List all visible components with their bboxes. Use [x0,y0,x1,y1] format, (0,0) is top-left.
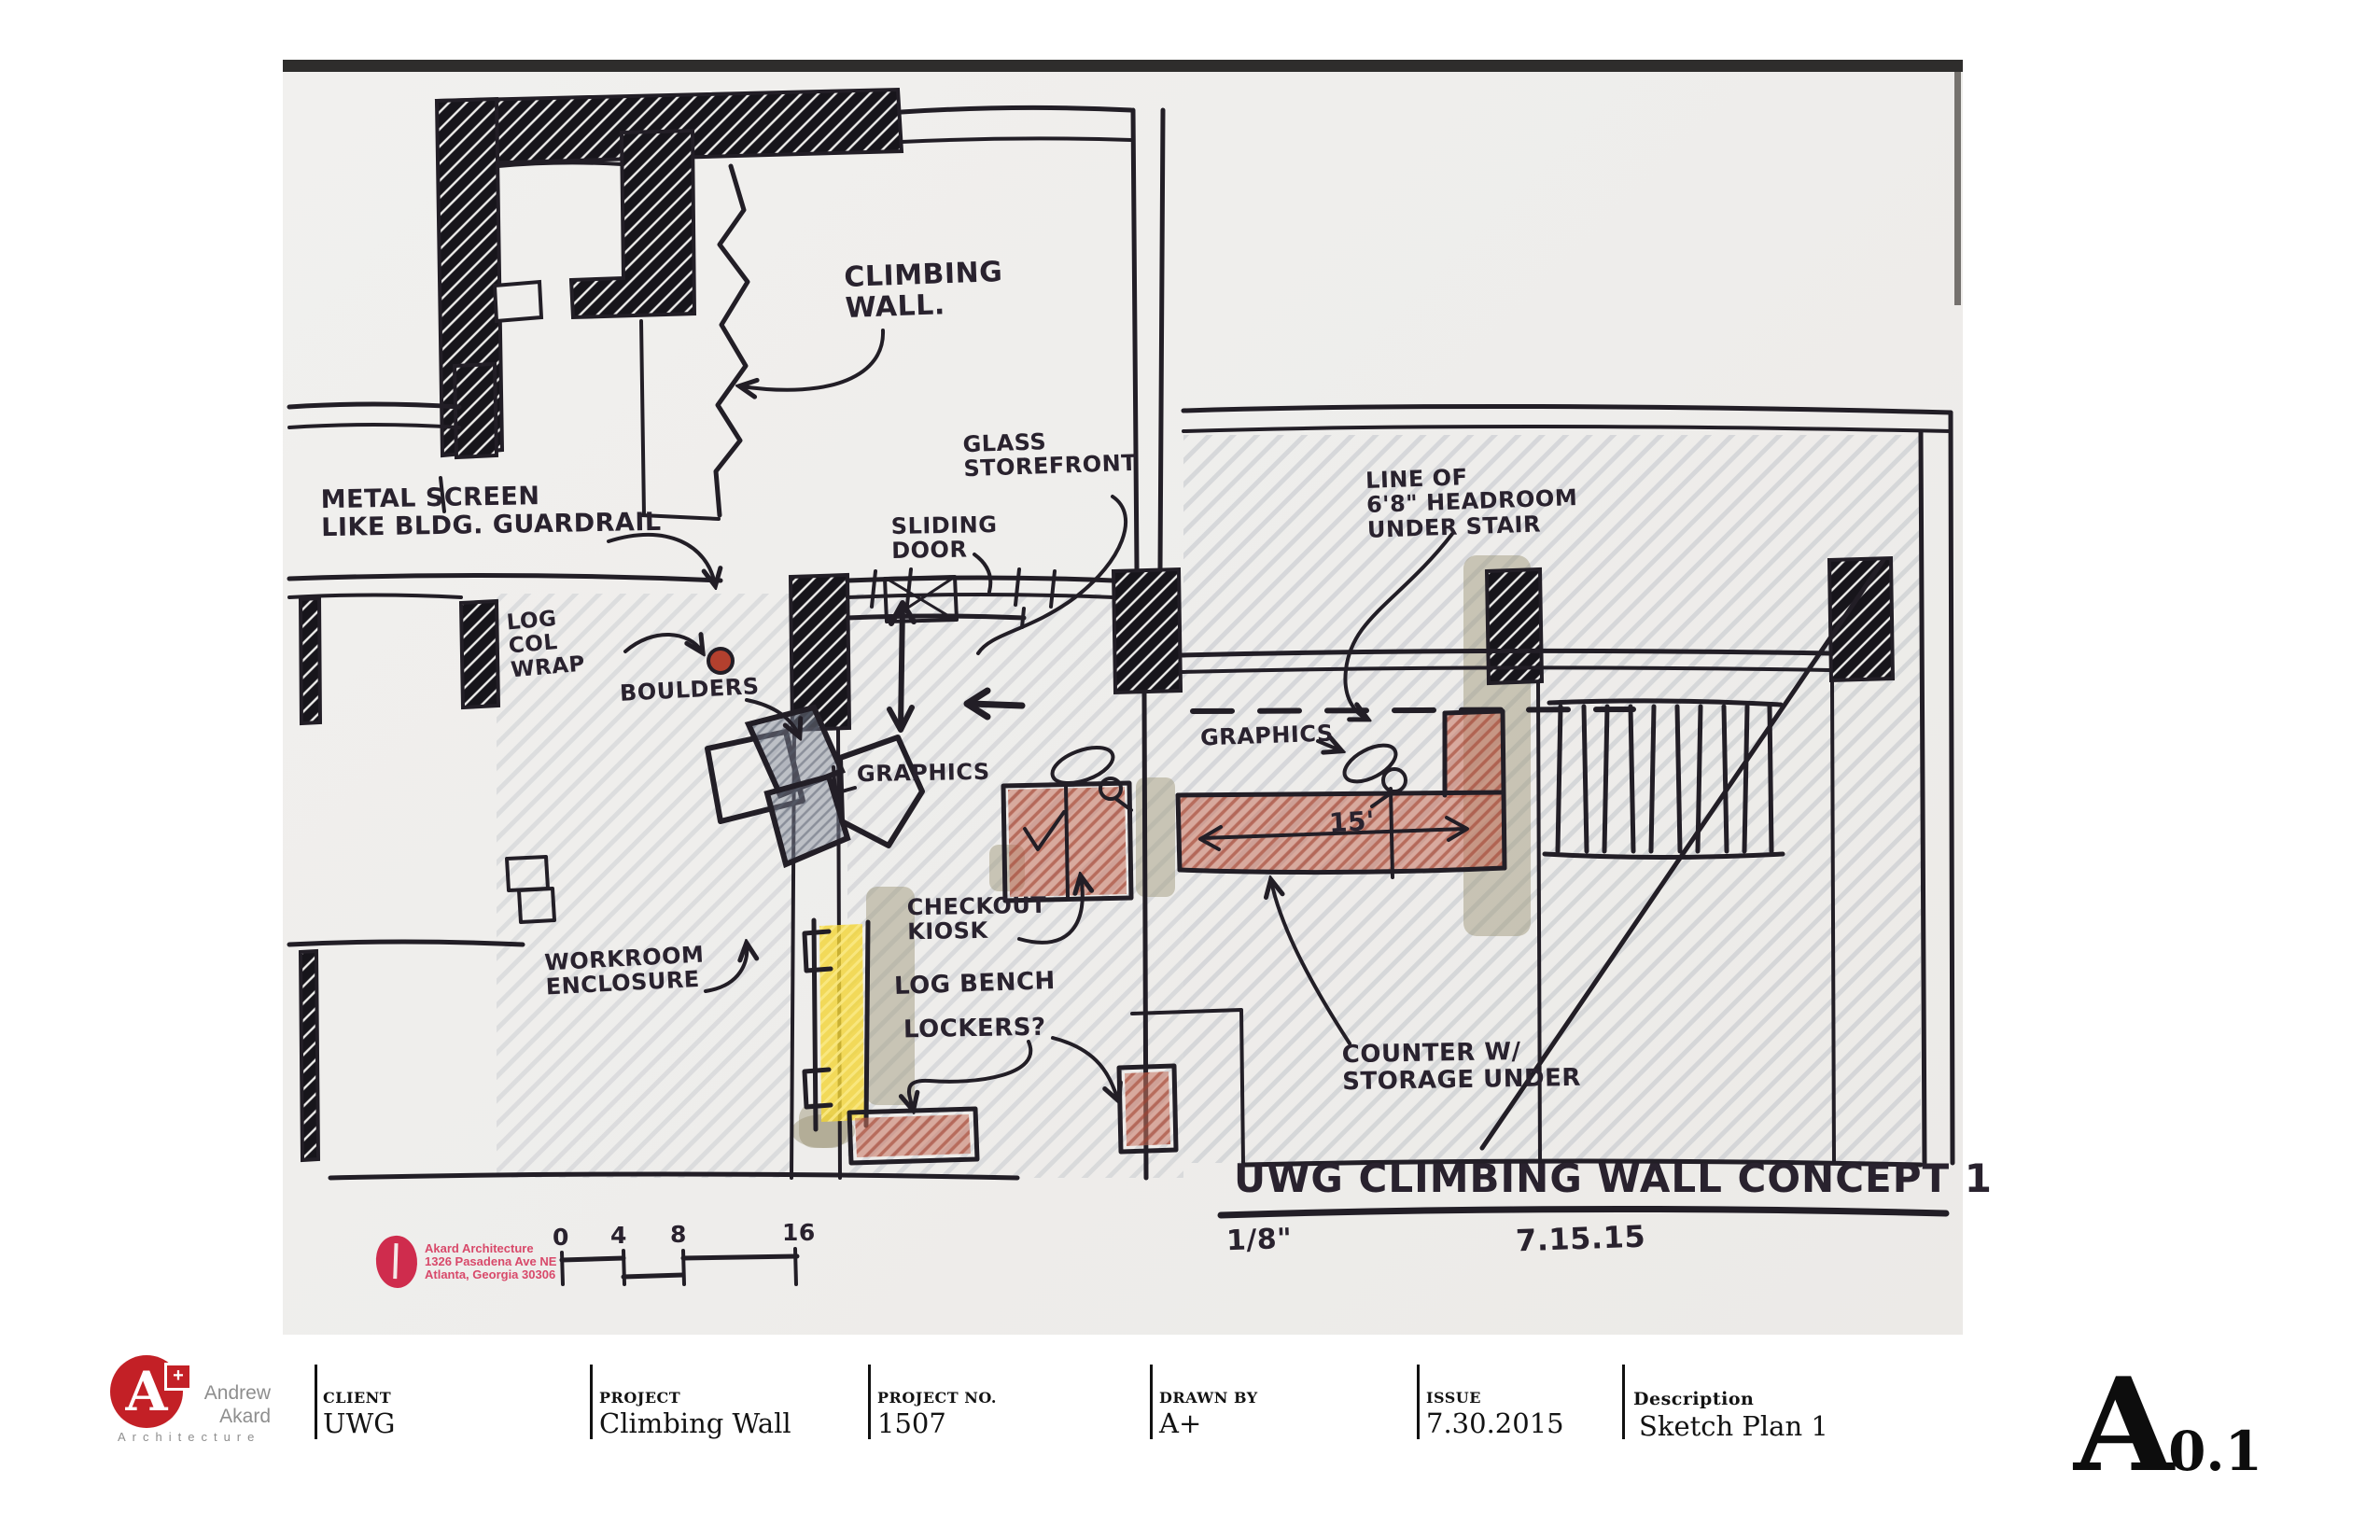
logo-subtitle: Architecture [118,1430,276,1444]
field-label: CLIENT [323,1389,395,1407]
field-value: UWG [323,1407,395,1439]
sheet-number-suffix: 0.1 [2168,1424,2262,1478]
field-value: A+ [1159,1407,1258,1439]
annotation-workroom-enclosure: WORKROOM ENCLOSURE [544,943,707,1001]
firm-logo: A + Andrew Akard Architecture [110,1355,250,1449]
paper-scan-edge-right [1954,72,1961,305]
logo-name-line1: Andrew [189,1381,271,1405]
annotation-log-bench: LOG BENCH [894,968,1057,1001]
field-label: ISSUE [1426,1389,1564,1407]
sheet-number: A 0.1 [2074,1361,2262,1490]
paper-scan-edge [283,60,1963,72]
annotation-log-col-wrap: LOG COL WRAP [506,606,586,683]
annotation-climbing-wall: CLIMBING WALL. [844,257,1004,324]
annotation-checkout-kiosk: CHECKOUT KIOSK [907,893,1047,945]
annotation-glass-storefront: GLASS STOREFRONT [962,427,1137,482]
annotation-sliding-door: SLIDING DOOR [891,512,999,564]
field-label: PROJECT [599,1389,791,1407]
scalebar-label-4: 4 [610,1223,627,1249]
scalebar-label-16: 16 [782,1220,816,1246]
logo-name-line2: Akard [189,1405,271,1428]
field-value: Climbing Wall [599,1407,791,1439]
titleblock-divider [590,1365,593,1439]
titleblock-divider [315,1365,317,1439]
titleblock-field-client: CLIENT UWG [323,1389,395,1439]
stamp-address-line1: 1326 Pasadena Ave NE [425,1255,556,1268]
logo-firm-name: Andrew Akard [189,1381,271,1428]
stamp-firm-name: Akard Architecture [425,1242,556,1255]
architect-stamp: Akard Architecture 1326 Pasadena Ave NE … [376,1236,556,1288]
annotation-graphics-right: GRAPHICS [1200,721,1335,750]
field-label: PROJECT NO. [877,1389,997,1407]
sheet-page: CLIMBING WALL. METAL SCREEN LIKE BLDG. G… [0,0,2380,1540]
titleblock-field-project: PROJECT Climbing Wall [599,1389,791,1439]
annotation-lockers: LOCKERS? [903,1015,1046,1043]
stamp-logo-mark [373,1234,420,1290]
annotation-metal-screen: METAL SCREEN LIKE BLDG. GUARDRAIL [321,481,662,542]
field-label: Description [1633,1389,1828,1409]
annotation-counter: COUNTER W/ STORAGE UNDER [1342,1038,1582,1096]
field-value: 7.30.2015 [1426,1407,1564,1439]
annotation-graphics-left: GRAPHICS [857,760,990,787]
annotation-headroom-line: LINE OF 6'8" HEADROOM UNDER STAIR [1365,461,1579,542]
scalebar-label-8: 8 [670,1222,687,1248]
titleblock-divider [1417,1365,1420,1439]
drawing-date-note: 7.15.15 [1515,1221,1645,1258]
titleblock-field-issue: ISSUE 7.30.2015 [1426,1389,1564,1439]
dimension-15ft: 15' [1328,807,1376,838]
titleblock-field-description: Description Sketch Plan 1 [1633,1389,1828,1442]
titleblock-field-drawn-by: DRAWN BY A+ [1159,1389,1258,1439]
stamp-address-line2: Atlanta, Georgia 30306 [425,1268,556,1281]
drawing-scale-note: 1/8" [1225,1224,1292,1256]
field-value: Sketch Plan 1 [1639,1410,1828,1442]
drawing-title: UWG CLIMBING WALL CONCEPT 1 [1234,1157,1993,1200]
titleblock-divider [868,1365,871,1439]
titleblock-divider [1150,1365,1153,1439]
field-label: DRAWN BY [1159,1389,1258,1407]
sheet-number-letter: A [2074,1361,2174,1490]
titleblock-field-project-no: PROJECT NO. 1507 [877,1389,997,1439]
titleblock-divider [1622,1365,1625,1439]
sketch-paper [283,63,1963,1335]
field-value: 1507 [877,1407,997,1439]
